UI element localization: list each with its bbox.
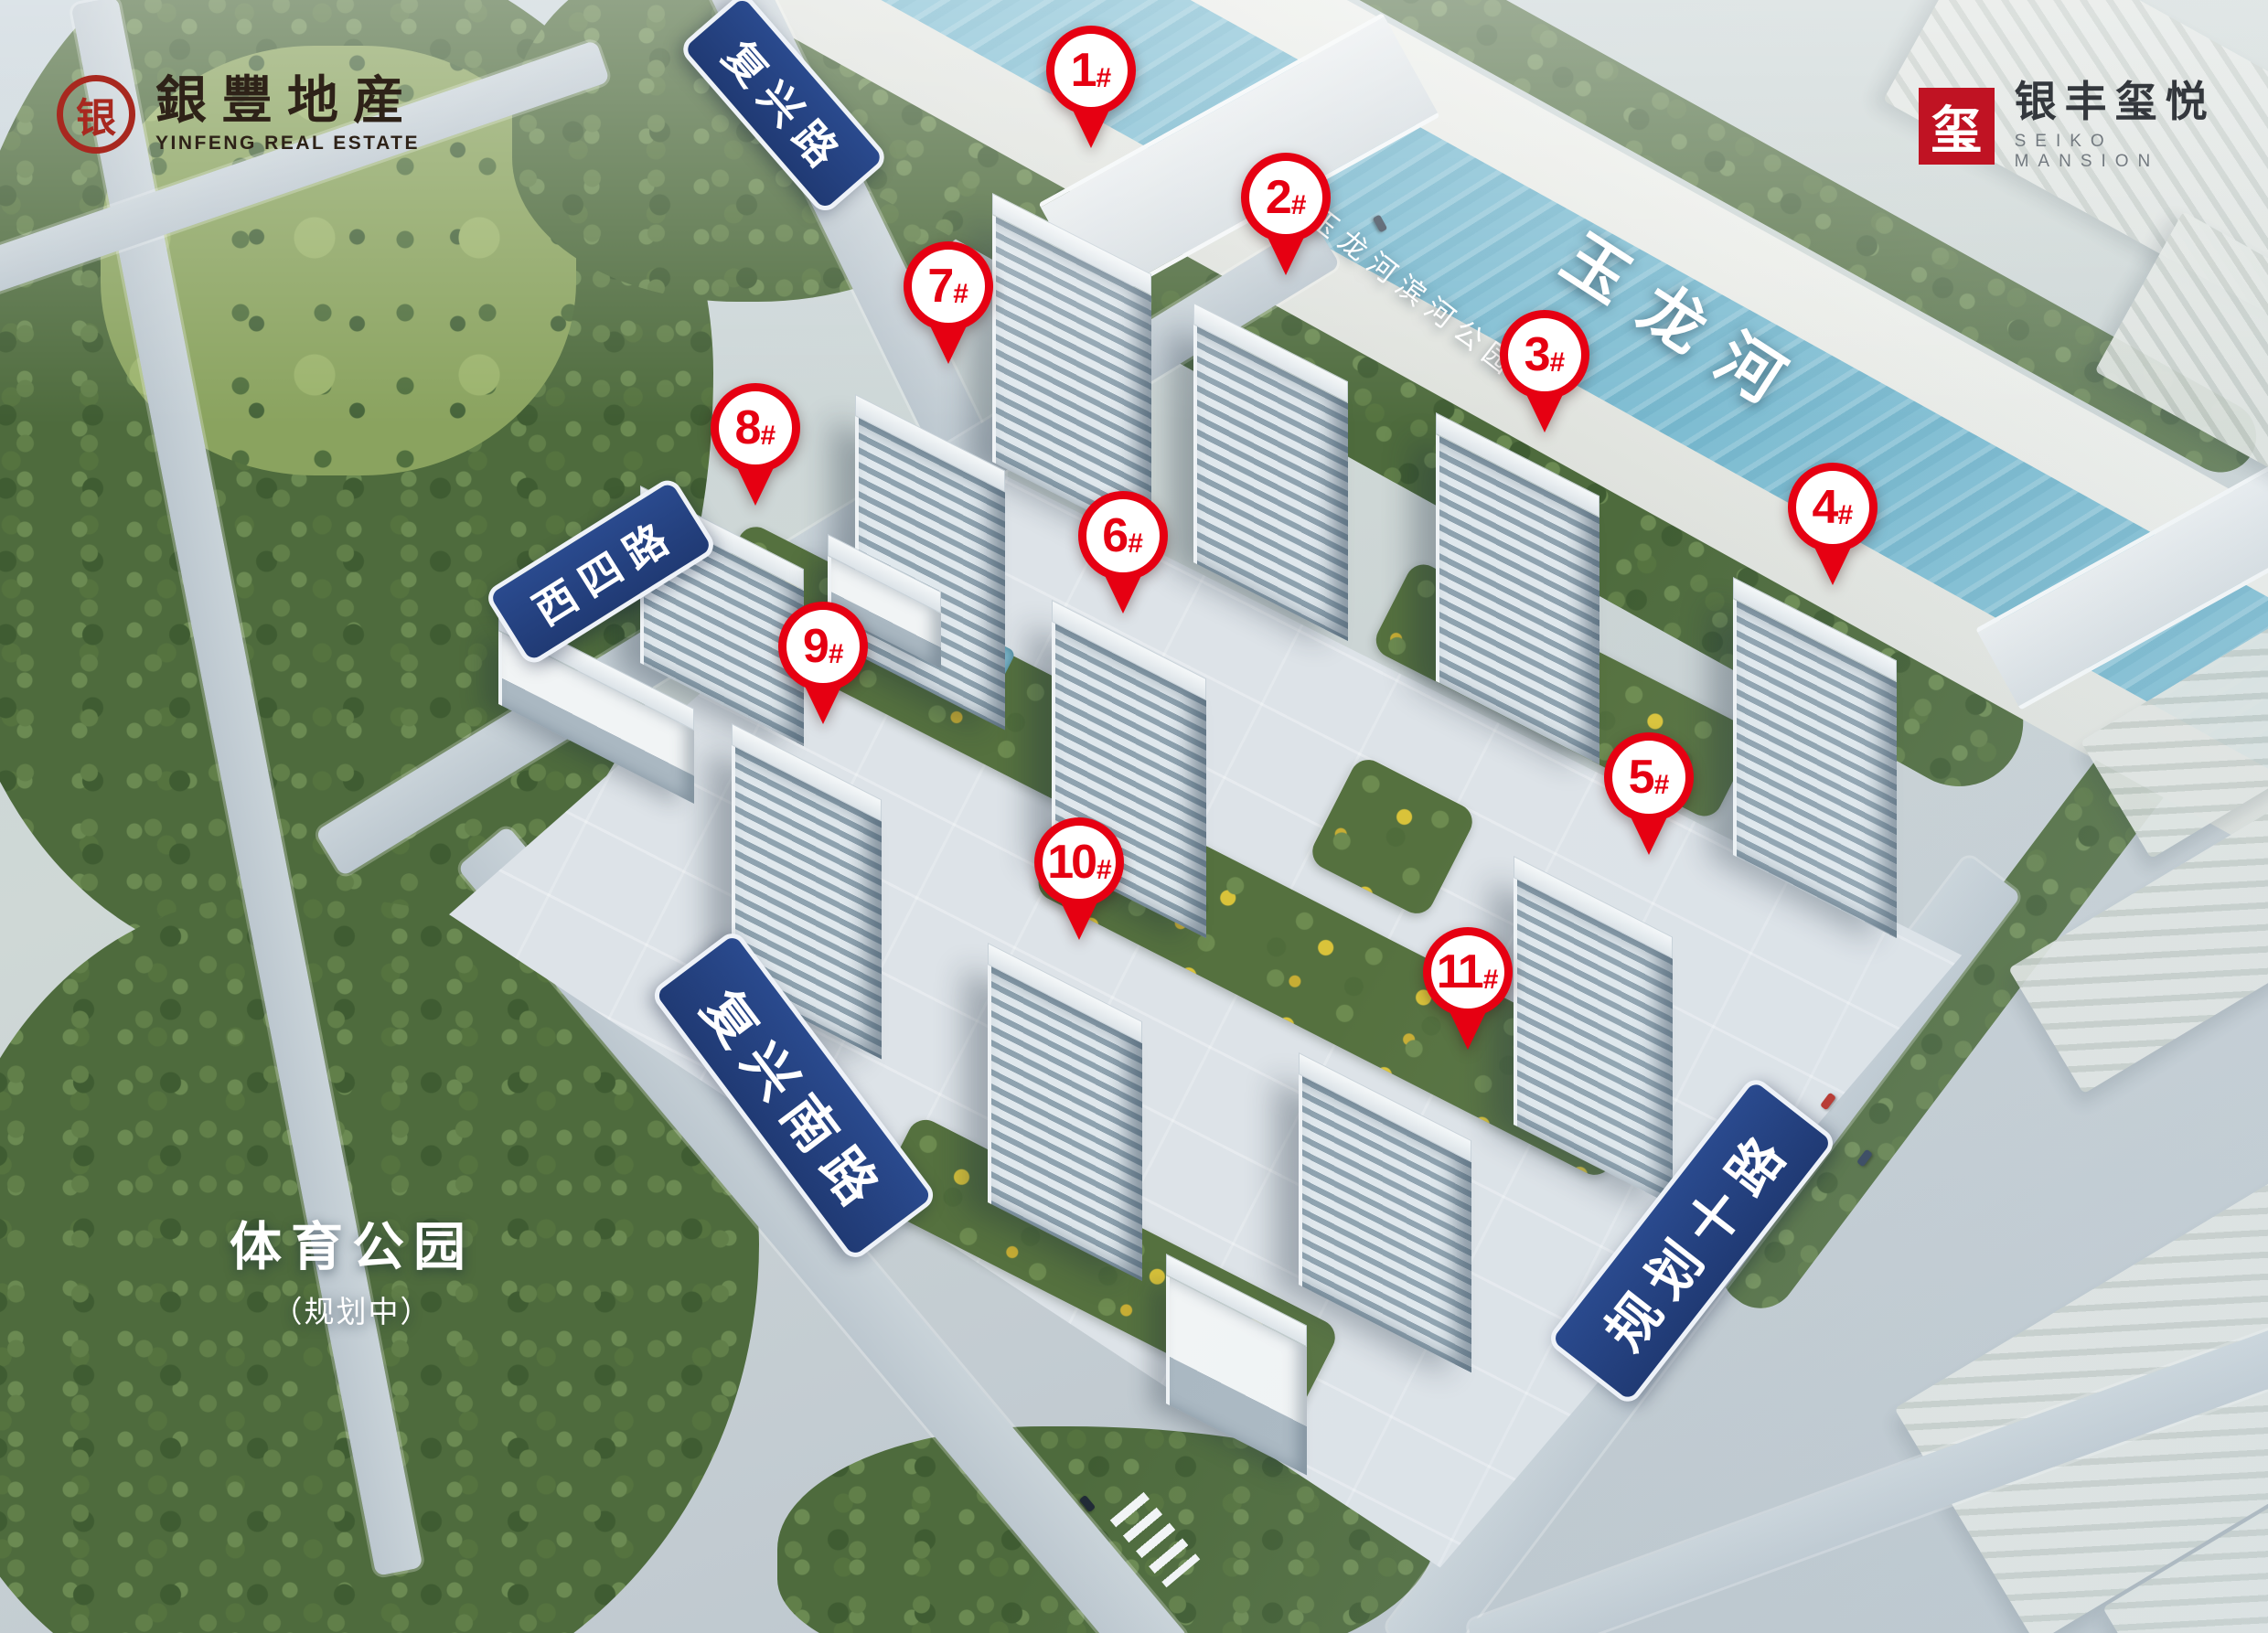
marker-circle: 1# (1046, 26, 1136, 115)
project-seal-icon: 玺 (1919, 88, 1995, 165)
marker-number: 6 (1102, 512, 1126, 560)
marker-number: 2 (1266, 174, 1289, 221)
marker-hash: # (1128, 530, 1143, 558)
marker-circle: 5# (1604, 732, 1694, 822)
marker-number: 3 (1524, 331, 1548, 379)
building-marker-layer: 1#2#3#4#5#6#7#8#9#10#11# (0, 0, 2268, 1633)
marker-hash: # (1549, 349, 1565, 377)
marker-pin-9: 9# (776, 602, 871, 724)
project-logo-text: 银丰玺悦 SEIKO MANSION (2015, 80, 2268, 172)
marker-pin-4: 4# (1785, 463, 1880, 585)
marker-circle: 2# (1241, 153, 1331, 242)
marker-circle: 6# (1078, 491, 1168, 581)
developer-seal-icon: 银 (57, 75, 135, 154)
marker-hash: # (1097, 857, 1112, 884)
marker-number: 10 (1047, 838, 1095, 886)
aerial-masterplan-rendering: 复兴路 西四路 复兴南路 规划十路 玉龙河 玉龙河滨河公园 体育公园 （规划中）… (0, 0, 2268, 1633)
marker-circle: 10# (1034, 817, 1124, 907)
marker-circle: 8# (711, 383, 800, 473)
developer-logo: 银 銀豐地産 YINFENG REAL ESTATE (57, 75, 420, 155)
marker-circle: 9# (778, 602, 868, 691)
developer-name-cn: 銀豐地産 (155, 75, 420, 129)
marker-hash: # (760, 422, 776, 450)
marker-pin-10: 10# (1032, 817, 1127, 940)
developer-logo-text: 銀豐地産 YINFENG REAL ESTATE (155, 75, 420, 155)
developer-name-en: YINFENG REAL ESTATE (155, 133, 420, 155)
marker-number: 4 (1813, 484, 1836, 531)
marker-circle: 7# (904, 241, 993, 331)
marker-circle: 3# (1500, 310, 1589, 400)
marker-pin-8: 8# (708, 383, 803, 506)
project-name-cn: 银丰玺悦 (2015, 80, 2268, 124)
marker-pin-3: 3# (1497, 310, 1592, 432)
project-logo: 玺 银丰玺悦 SEIKO MANSION (1919, 80, 2268, 172)
marker-number: 7 (927, 262, 951, 310)
marker-pin-11: 11# (1420, 927, 1515, 1050)
marker-hash: # (829, 641, 844, 668)
marker-hash: # (1837, 502, 1853, 529)
marker-pin-1: 1# (1043, 26, 1139, 148)
marker-pin-2: 2# (1238, 153, 1333, 275)
marker-number: 1 (1071, 47, 1095, 94)
marker-pin-7: 7# (901, 241, 996, 364)
marker-hash: # (1654, 772, 1670, 799)
marker-number: 8 (735, 404, 759, 452)
marker-pin-5: 5# (1601, 732, 1696, 855)
marker-number: 9 (803, 623, 827, 670)
marker-circle: 4# (1788, 463, 1878, 552)
project-name-en: SEIKO MANSION (2015, 132, 2268, 172)
marker-number: 5 (1629, 753, 1653, 801)
marker-hash: # (1096, 65, 1111, 92)
marker-circle: 11# (1423, 927, 1513, 1017)
marker-pin-6: 6# (1075, 491, 1171, 614)
marker-hash: # (1291, 192, 1307, 219)
marker-hash: # (1483, 966, 1499, 994)
marker-hash: # (953, 281, 968, 308)
marker-number: 11 (1437, 948, 1482, 996)
